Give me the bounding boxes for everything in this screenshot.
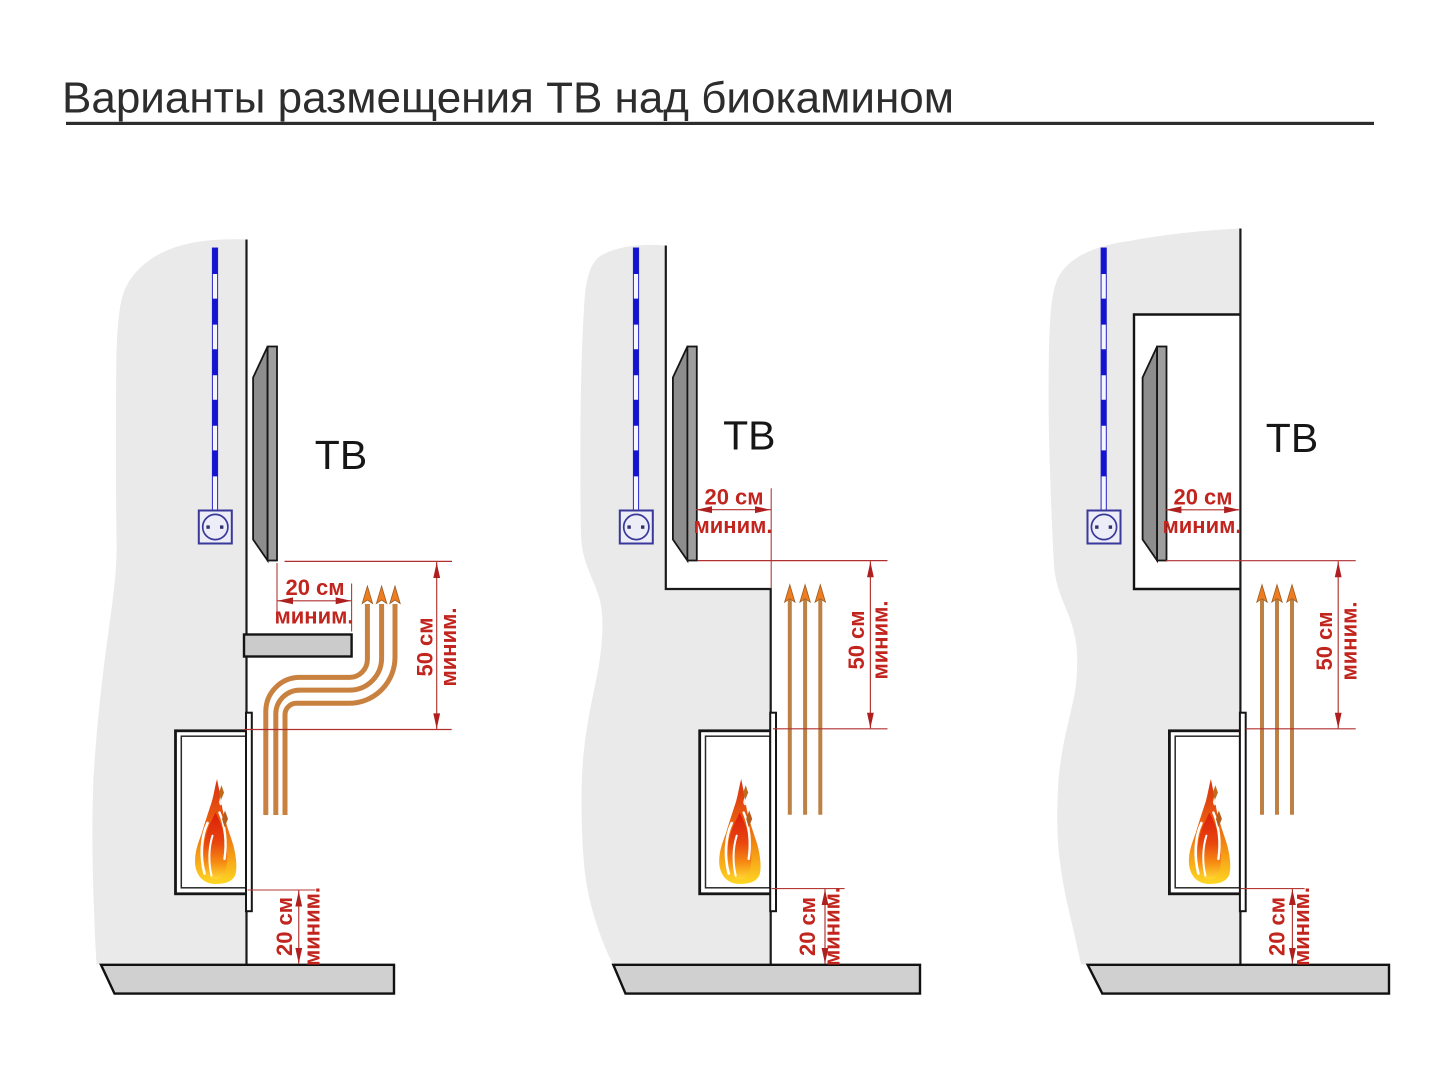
svg-text:20 см: 20 см bbox=[1265, 897, 1290, 956]
svg-text:20 см: 20 см bbox=[272, 897, 297, 956]
svg-text:50 см: 50 см bbox=[844, 610, 869, 669]
svg-text:миним.: миним. bbox=[1336, 602, 1361, 681]
svg-text:50 см: 50 см bbox=[1312, 611, 1337, 670]
svg-text:20 см: 20 см bbox=[795, 897, 820, 956]
svg-text:миним.: миним. bbox=[819, 887, 844, 966]
svg-text:50 см: 50 см bbox=[413, 617, 438, 676]
svg-text:Варианты размещения ТВ над био: Варианты размещения ТВ над биокамином bbox=[62, 74, 954, 123]
svg-text:20 см: 20 см bbox=[285, 575, 344, 600]
svg-text:миним.: миним. bbox=[1289, 887, 1314, 966]
svg-text:миним.: миним. bbox=[694, 513, 773, 538]
svg-text:20 см: 20 см bbox=[704, 484, 763, 509]
svg-text:миним.: миним. bbox=[436, 608, 461, 687]
svg-text:миним.: миним. bbox=[1163, 513, 1242, 538]
svg-text:20 см: 20 см bbox=[1173, 485, 1232, 510]
svg-text:ТВ: ТВ bbox=[315, 432, 367, 478]
svg-text:миним.: миним. bbox=[868, 601, 893, 680]
svg-text:миним.: миним. bbox=[300, 887, 325, 966]
svg-text:миним.: миним. bbox=[275, 604, 354, 629]
svg-text:ТВ: ТВ bbox=[723, 412, 775, 458]
svg-text:ТВ: ТВ bbox=[1266, 415, 1318, 461]
